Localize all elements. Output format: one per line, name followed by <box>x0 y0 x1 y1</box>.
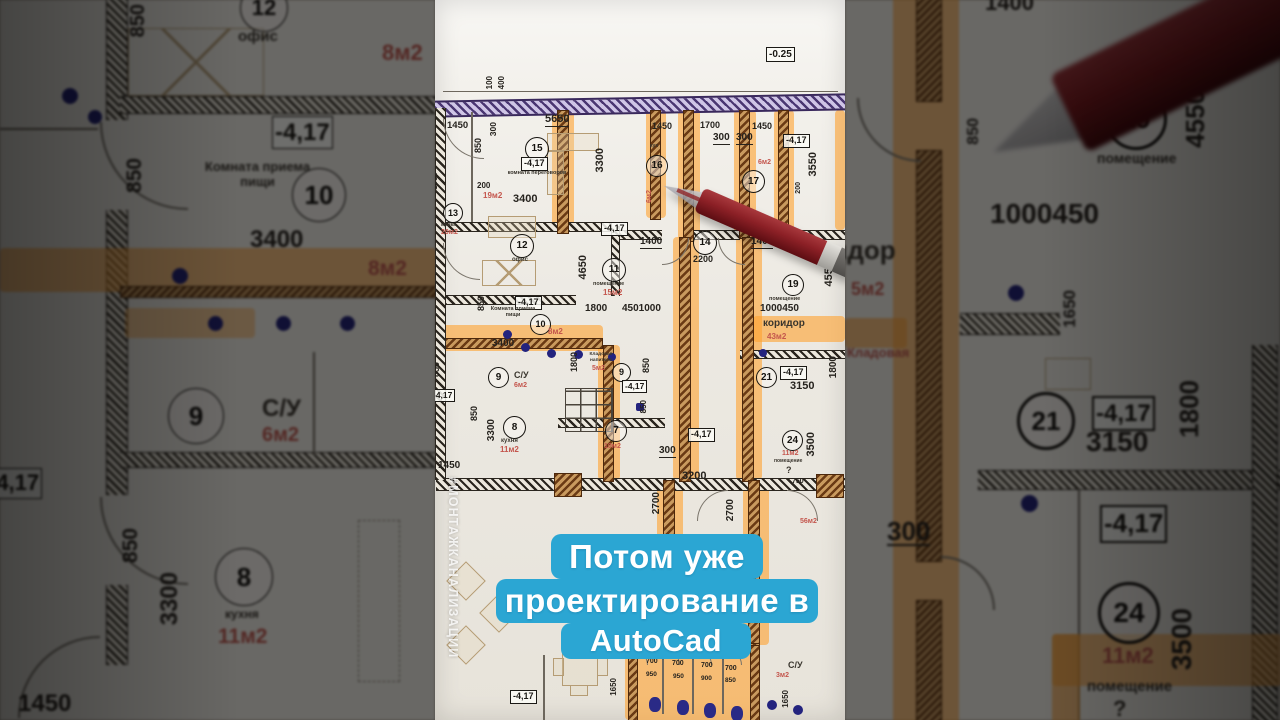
dim-3200: 3200 <box>682 471 706 482</box>
wall <box>120 452 435 468</box>
caption-line-1: Потом уже <box>551 534 763 579</box>
dim-3300: 3300 <box>595 148 606 172</box>
room-label: помещение <box>769 296 800 302</box>
wall-line <box>0 128 98 130</box>
dim-700: 700 <box>701 662 713 669</box>
room-circle-9: 9 <box>168 388 224 444</box>
dim-850: 850 <box>120 528 141 563</box>
highlight-marker <box>835 110 845 230</box>
room-label: помещение <box>774 459 802 465</box>
area-label: 6м2 <box>646 190 653 203</box>
area-label: 10м2 <box>604 443 621 450</box>
room-circle-19: 19 <box>782 274 804 296</box>
area-label: 6м2 <box>262 425 299 445</box>
furniture-chair <box>570 685 588 696</box>
furniture-desk <box>482 260 536 286</box>
room-label-storage: Кладовая <box>847 346 909 359</box>
wall <box>120 96 435 114</box>
room-circle-7: 7 <box>605 420 627 442</box>
room-circle-8: 8 <box>215 548 273 606</box>
wall <box>683 110 694 242</box>
room-label-wc: С/У <box>262 395 301 423</box>
room-circle-17: 17 <box>742 170 765 193</box>
door-arc <box>443 243 480 280</box>
dim-1800: 1800 <box>1176 380 1202 438</box>
room-label: помещение <box>1097 150 1176 166</box>
area-label: 20м2 <box>441 229 458 236</box>
dim-750: 750 <box>792 478 804 485</box>
sink-symbol <box>767 700 777 710</box>
dim-3150: 3150 <box>1086 428 1148 456</box>
toilet-symbol <box>677 700 689 715</box>
area-label: 56м2 <box>800 518 817 525</box>
room-circle-9: 9 <box>488 367 509 388</box>
wall <box>916 600 942 720</box>
dim-200: 200 <box>795 182 802 194</box>
door-arc <box>941 556 995 610</box>
wall <box>120 286 435 298</box>
dim-3550: 3550 <box>808 152 819 176</box>
area-label: 11м2 <box>782 450 798 457</box>
room-circle-24: 24 <box>1098 582 1160 644</box>
furniture-chair <box>597 658 608 676</box>
dim-850: 850 <box>640 400 648 413</box>
highlight-marker <box>125 308 255 338</box>
elevation-box: -4,17 <box>521 157 548 171</box>
dim-3400: 3400 <box>250 228 303 252</box>
elevation-box: -4,17 <box>780 366 807 380</box>
dim-300: 300 <box>887 518 930 546</box>
dim-850: 850 <box>725 678 736 685</box>
dim-1400: 1400 <box>985 0 1034 14</box>
dim-4501000: 4501000 <box>622 304 661 314</box>
background-right-panel: 1400 19 помещение 4550 850 1000450 корид… <box>845 0 1280 720</box>
dim-850: 850 <box>477 296 486 311</box>
area-label: 11м2 <box>1102 645 1154 667</box>
dim-300: 300 <box>713 133 730 145</box>
highlight-marker <box>845 318 907 348</box>
area-label: 19м2 <box>483 192 502 200</box>
room-circle-13: 13 <box>443 203 463 223</box>
room-label-wc: С/У <box>788 660 803 670</box>
room-circle-21: 21 <box>756 367 777 388</box>
room-label-kitchen: кухня <box>225 608 259 622</box>
plumbing-symbol <box>172 268 188 284</box>
room-circle-24: 24 <box>782 430 803 451</box>
dim-300: 300 <box>489 122 498 136</box>
furniture-sofa <box>488 216 536 238</box>
dim-3500: 3500 <box>806 432 817 456</box>
plumbing-symbol <box>1008 285 1024 301</box>
wall <box>679 237 691 482</box>
dim-1450: 1450 <box>752 122 772 131</box>
sink-symbol <box>793 705 803 715</box>
wall <box>916 0 942 102</box>
area-label: 5м2 <box>592 365 605 372</box>
room-label-kitchen: кухня <box>501 438 518 445</box>
room-circle-14: 14 <box>693 231 717 255</box>
watermark-text: #МОНТАЖКАНАЛИЗАЦИИ <box>446 477 460 658</box>
area-label: 8м2 <box>382 42 423 64</box>
area-label: 6м2 <box>758 159 771 166</box>
dim-3150: 3150 <box>790 381 814 392</box>
toilet-symbol <box>731 706 743 720</box>
caption-line-3: AutoCad <box>561 623 751 659</box>
plumbing-symbol <box>521 343 530 352</box>
dim-2700: 2700 <box>726 499 736 521</box>
dim-2700: 2700 <box>652 492 662 514</box>
dim-850: 850 <box>128 4 148 37</box>
background-left-plan: 12 офис 8м2 -4,17 Комната приема пищи 10… <box>0 0 435 720</box>
room-circle-10: 10 <box>292 168 346 222</box>
room-circle-16: 16 <box>646 155 668 177</box>
area-label: 11м2 <box>218 626 267 647</box>
wall <box>106 585 128 665</box>
dim-1450: 1450 <box>18 692 71 716</box>
furniture-counter <box>358 520 400 682</box>
room-circle-8: 8 <box>503 416 526 439</box>
dim-900: 900 <box>701 676 712 683</box>
dim-1450: 1450 <box>438 461 460 471</box>
dim-850: 850 <box>474 138 483 153</box>
room-circle-12: 12 <box>510 234 534 258</box>
dim-300: 300 <box>736 133 753 145</box>
plumbing-symbol <box>547 349 556 358</box>
dim-1800: 1800 <box>585 304 607 314</box>
wall-post <box>554 473 582 497</box>
plumbing-symbol <box>759 349 767 357</box>
elevation-box: -4,17 <box>622 380 647 393</box>
dim-700: 700 <box>672 660 684 667</box>
door-arc <box>787 490 818 521</box>
room-label-office: офис <box>238 28 278 45</box>
room-label-wc: С/У <box>514 370 529 380</box>
room-label-question: ? <box>1113 696 1126 720</box>
elevation-box: -4,17 <box>1100 505 1167 543</box>
area-label: 3м2 <box>776 672 789 679</box>
room-circle-11: 11 <box>602 258 626 282</box>
dim-850: 850 <box>642 358 651 373</box>
room-label-question: ? <box>786 465 792 475</box>
area-label: 43м2 <box>767 333 786 341</box>
dim-950: 950 <box>646 672 657 679</box>
dimension-line <box>443 91 838 92</box>
dim-200: 200 <box>477 182 490 190</box>
highlight-marker <box>1052 634 1080 720</box>
room-label-meeting: комната переговоров <box>497 170 577 176</box>
wall <box>960 313 1060 335</box>
dim-1450: 1450 <box>447 121 468 131</box>
dim-1000450: 1000450 <box>990 200 1099 228</box>
door-arc <box>718 238 745 265</box>
room-label: помещение <box>593 281 624 287</box>
room-label-corridor: коридор <box>763 318 805 330</box>
room-label-kitchenette: кух <box>650 144 658 150</box>
plumbing-symbol <box>1021 495 1038 512</box>
dim-1800: 1800 <box>570 352 579 372</box>
wall-line <box>543 655 545 720</box>
elevation-box-top: -0.25 <box>766 47 795 62</box>
area-label: 6м2 <box>514 382 527 389</box>
area-label: 15м2 <box>603 289 622 297</box>
plumbing-symbol <box>340 316 355 331</box>
dim-1700: 1700 <box>700 121 720 130</box>
wall <box>978 470 1280 490</box>
wall <box>436 478 845 491</box>
room-label: помещение <box>1087 678 1172 695</box>
dim-850: 850 <box>124 158 145 193</box>
plumbing-symbol <box>62 88 78 104</box>
dim-850: 850 <box>470 406 479 421</box>
dim-1800: 1800 <box>829 356 839 378</box>
dim-1650: 1650 <box>782 690 790 708</box>
dim-2200: 2200 <box>693 255 713 264</box>
dim-1450: 1450 <box>652 122 672 131</box>
area-label: 11м2 <box>500 446 519 454</box>
area-label: 8м2 <box>368 258 407 279</box>
wall <box>916 150 942 562</box>
plumbing-symbol <box>88 110 102 124</box>
dim-3300: 3300 <box>487 419 497 441</box>
wall <box>742 237 754 482</box>
caption-line-2: проектирование в <box>496 579 818 623</box>
room-label-corridor: коридор <box>845 236 896 266</box>
dim-1400: 1400 <box>640 237 662 249</box>
dim-400: 400 <box>498 76 506 89</box>
dim-1650: 1650 <box>1061 290 1078 328</box>
wall <box>750 645 760 720</box>
room-label-lunch: Комната приема пищи <box>490 306 536 319</box>
wall-post <box>816 474 844 498</box>
elevation-box: -4,17 <box>783 134 810 148</box>
elevation-box: -4,17 <box>0 468 42 499</box>
wall <box>435 108 446 480</box>
wall <box>436 295 576 305</box>
door-arc <box>697 490 728 521</box>
furniture <box>547 133 599 151</box>
room-circle-21: 21 <box>1017 392 1075 450</box>
furniture-closet <box>1045 358 1091 390</box>
wall-line <box>313 352 315 455</box>
dim-100: 100 <box>486 76 494 89</box>
furniture-chair <box>553 658 564 676</box>
dim-3400: 3400 <box>492 339 514 349</box>
door-arc <box>857 98 921 162</box>
area-label: 5м2 <box>851 280 884 298</box>
room-label-sink: мойка <box>441 223 456 229</box>
dim-700: 700 <box>646 658 658 665</box>
dim-3300: 3300 <box>158 572 182 625</box>
elevation-box: -4,17 <box>688 428 715 442</box>
dim-950: 950 <box>673 674 684 681</box>
video-frame-stage: 12 офис 8м2 -4,17 Комната приема пищи 10… <box>0 0 1280 720</box>
dim-300: 300 <box>659 446 676 458</box>
room-label-pantry: Кладовая напитков <box>581 352 621 363</box>
dim-1000450: 1000450 <box>760 304 799 314</box>
dim-4650: 4650 <box>578 255 589 279</box>
dim-850: 850 <box>435 362 441 377</box>
dim-3500: 3500 <box>1168 608 1196 670</box>
dim-700: 700 <box>725 665 737 672</box>
dim-5650: 5650 <box>545 114 569 127</box>
elevation-box: -4,17 <box>272 116 333 149</box>
plumbing-symbol <box>276 316 291 331</box>
video-strip: -0.25 100 400 1450 5650 300 850 3300 165… <box>435 0 845 720</box>
toilet-symbol <box>649 697 661 712</box>
elevation-box: -4,17 <box>601 222 628 236</box>
room-label-office: офис <box>512 257 528 264</box>
wall <box>778 110 789 237</box>
elevation-box: -4,17 <box>510 690 537 704</box>
toilet-symbol <box>704 703 716 718</box>
elevation-box: -4,17 <box>435 389 455 402</box>
dim-1650: 1650 <box>610 678 618 696</box>
background-left-panel: 12 офис 8м2 -4,17 Комната приема пищи 10… <box>0 0 435 720</box>
background-right-plan: 1400 19 помещение 4550 850 1000450 корид… <box>845 0 1280 720</box>
wall <box>436 338 603 349</box>
area-label: 8м2 <box>548 328 563 336</box>
dim-3400: 3400 <box>513 194 537 205</box>
dim-1650: 1650 <box>435 172 439 190</box>
plumbing-symbol <box>208 316 223 331</box>
